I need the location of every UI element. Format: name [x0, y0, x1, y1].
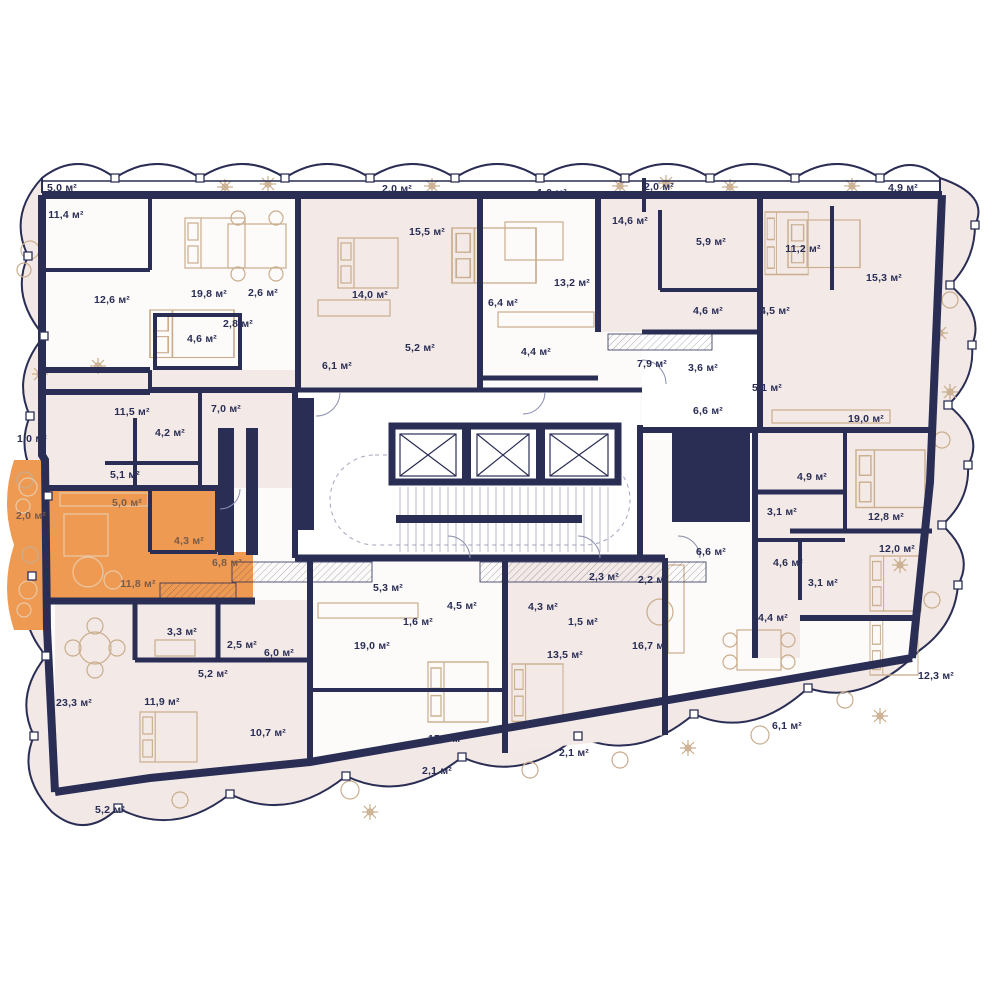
floor-plan-stage: 5,0 м²11,4 м²2,0 м²1,0 м²2,0 м²4,9 м²15,… — [0, 0, 1000, 1000]
elevator-core — [392, 426, 618, 482]
floor-plan-drawing — [0, 0, 1000, 1000]
